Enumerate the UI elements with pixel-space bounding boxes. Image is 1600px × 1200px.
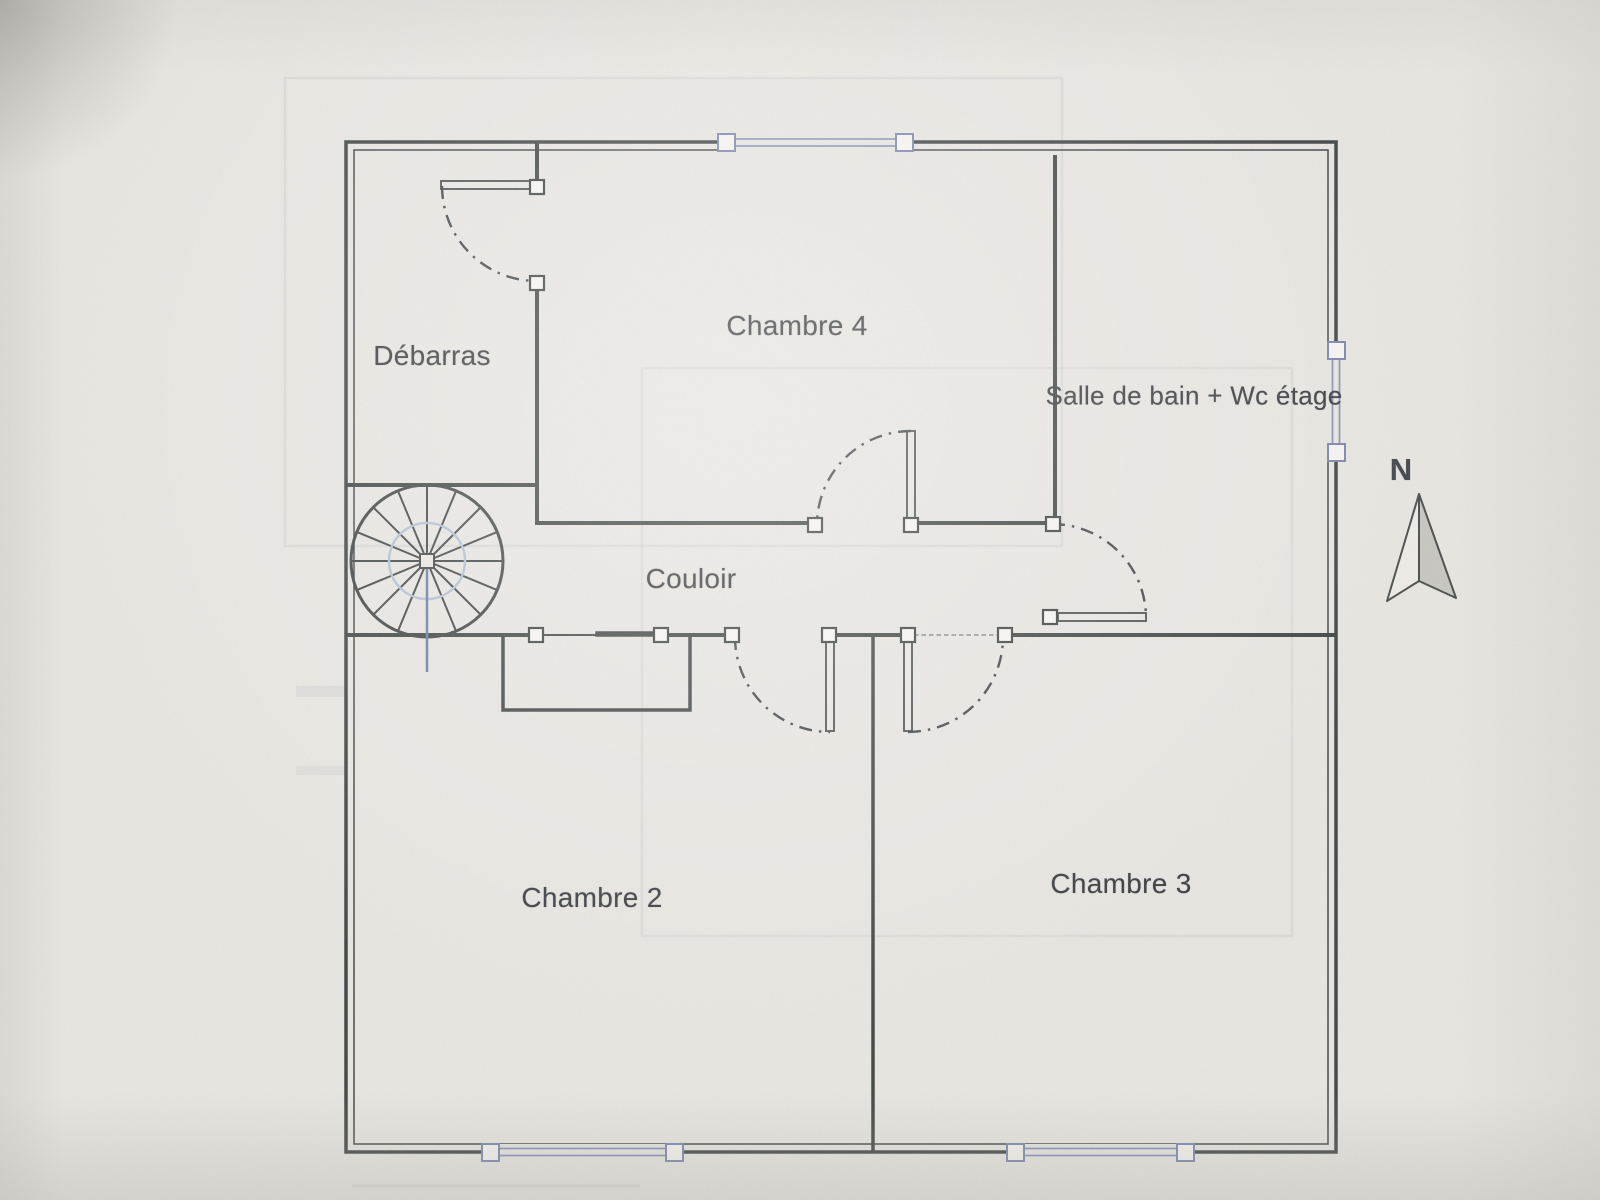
doors: [441, 180, 1146, 732]
room-label-chambre-3: Chambre 3: [1050, 868, 1191, 900]
door-chambre-4: [817, 431, 915, 525]
closet-notch: [503, 637, 690, 710]
window-south-right: [1006, 1144, 1194, 1161]
outer-walls: [346, 142, 1336, 1152]
bleed-through-marks: [285, 78, 1292, 1186]
door-bathroom: [1052, 524, 1146, 621]
interior-walls: [349, 144, 1334, 1150]
room-label-couloir: Couloir: [646, 563, 737, 595]
room-label-debarras: Débarras: [373, 340, 491, 372]
floor-plan-drawing: [0, 0, 1600, 1200]
compass-north-label: N: [1390, 452, 1412, 488]
window-north: [718, 134, 914, 151]
door-debarras: [441, 181, 537, 281]
door-jamb-squares: [529, 180, 1060, 642]
window-south-left: [481, 1144, 684, 1161]
room-label-chambre-2: Chambre 2: [521, 882, 662, 914]
floor-plan-document: Débarras Chambre 4 Salle de bain + Wc ét…: [0, 0, 1600, 1200]
door-chambre-3: [904, 637, 1003, 732]
north-arrow-icon: [1387, 494, 1456, 601]
door-chambre-2: [735, 637, 834, 732]
room-label-salle-de-bain: Salle de bain + Wc étage: [1046, 381, 1343, 412]
spiral-staircase-icon: [351, 485, 503, 672]
room-label-chambre-4: Chambre 4: [726, 310, 867, 342]
windows: [481, 134, 1345, 1161]
